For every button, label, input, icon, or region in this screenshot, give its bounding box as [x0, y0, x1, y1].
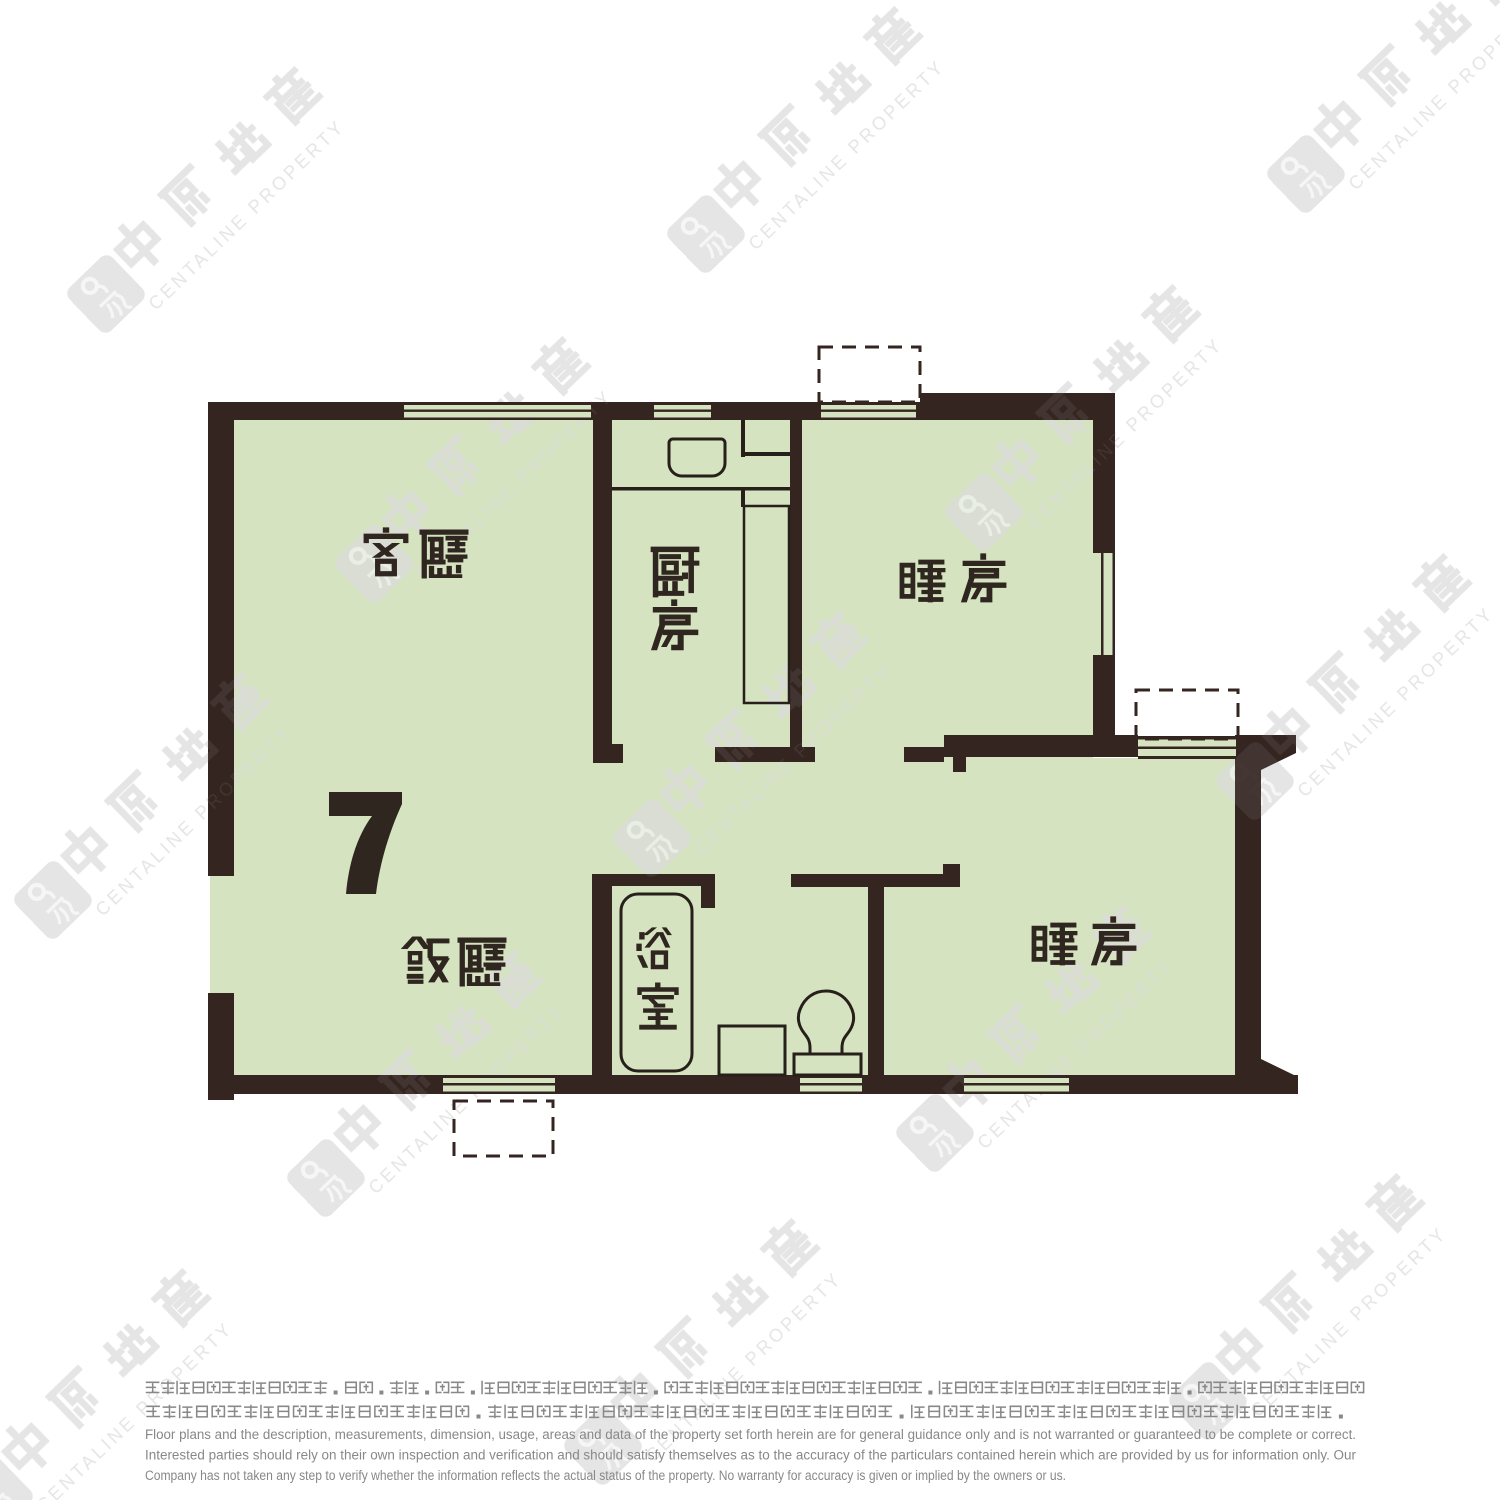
svg-text:Company has not taken any step: Company has not taken any step to verify…	[145, 1468, 1066, 1483]
svg-text:Floor plans and the descriptio: Floor plans and the description, measure…	[145, 1427, 1356, 1442]
svg-text:Interested parties should rely: Interested parties should rely on their …	[145, 1448, 1356, 1463]
